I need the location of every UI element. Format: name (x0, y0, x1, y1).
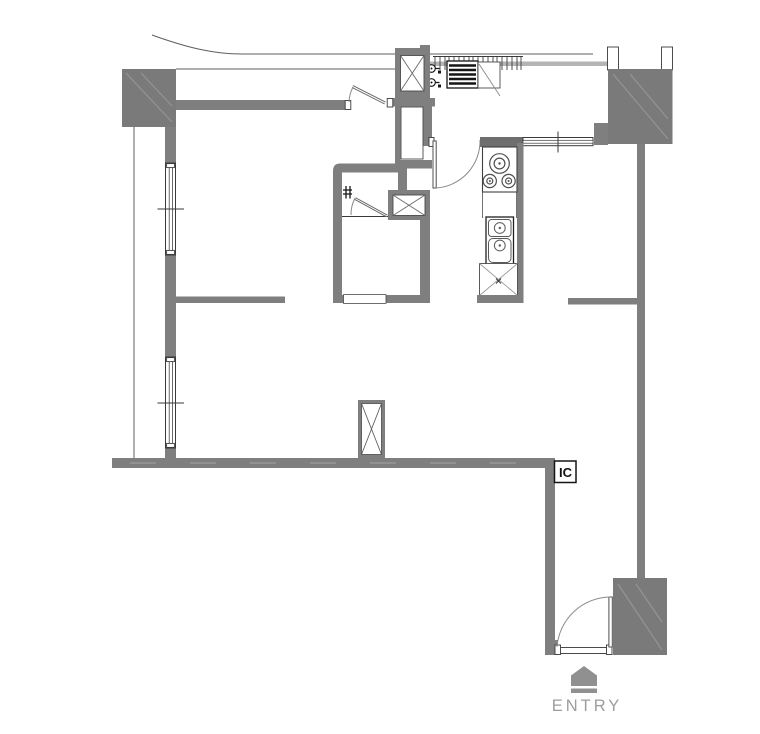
entry-door-leaf (609, 597, 612, 647)
wall-stub-left (608, 47, 619, 70)
bottom-walls (112, 400, 558, 655)
balcony-swing-curve (152, 35, 593, 54)
stove-icon (483, 147, 518, 192)
column-top-right (608, 47, 673, 144)
home-pentagon-bar (571, 689, 597, 694)
interior-wall-stub (176, 297, 285, 304)
balcony-door (345, 87, 393, 110)
floor-plan-page: IC ENTRY (0, 0, 760, 734)
entry-label: ENTRY (552, 697, 623, 715)
bathroom (333, 164, 430, 304)
service-shaft-upper (392, 45, 435, 107)
column-top-left (122, 69, 176, 127)
column-entry (613, 578, 667, 655)
washing-machine-icon (447, 61, 478, 88)
counter-right-wall (517, 143, 524, 303)
balcony-strip (152, 35, 608, 69)
counter-edges (483, 192, 517, 218)
duct-pocket (395, 106, 432, 169)
shaft-below-counter (477, 264, 518, 304)
door-leaf (433, 141, 436, 188)
floor-plan-drawing: IC ENTRY (0, 0, 760, 734)
top-wall (176, 100, 345, 110)
door-swing-arc (436, 140, 480, 188)
window-left-lower (158, 357, 185, 448)
kitchen-window (523, 132, 593, 153)
entry-area: ENTRY (552, 578, 667, 715)
plumbing-fixture-icon (343, 186, 352, 199)
framed-post (358, 400, 385, 458)
ic-label: IC (559, 465, 573, 480)
kitchen (429, 123, 608, 303)
entry-marker: ENTRY (552, 666, 623, 715)
door-swing-arc (351, 198, 355, 215)
entry-door-swing-arc (557, 597, 610, 647)
dining-wall-stub (568, 298, 640, 305)
wall-notch (594, 123, 608, 145)
kitchen-top-wall (480, 137, 523, 147)
sink-icon (486, 217, 514, 265)
wall-stub-right (662, 47, 673, 70)
cased-opening (344, 295, 387, 304)
home-pentagon-icon (571, 666, 597, 686)
window-left-upper (158, 163, 185, 255)
door-threshold (556, 648, 612, 654)
right-walls (568, 144, 645, 578)
bathroom-wall-L (333, 164, 407, 304)
appliance-outline-icon (478, 62, 500, 96)
right-exterior-wall (637, 144, 645, 578)
ic-label-box: IC (555, 461, 577, 483)
door-swing-arc (349, 87, 353, 102)
